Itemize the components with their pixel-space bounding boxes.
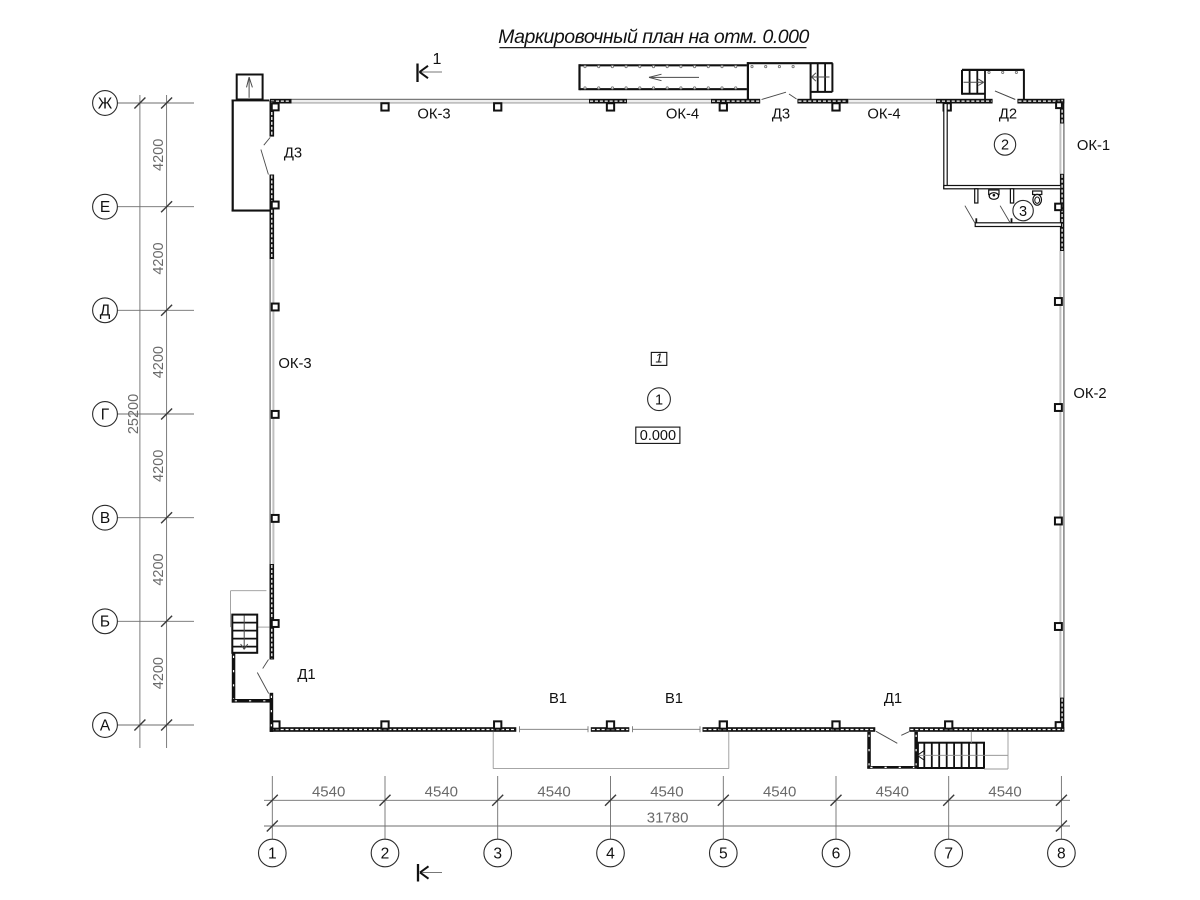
svg-text:Д2: Д2 [999,107,1017,123]
svg-text:1: 1 [268,846,277,863]
svg-text:4540: 4540 [763,784,796,801]
svg-text:4540: 4540 [876,784,909,801]
svg-text:4200: 4200 [151,657,167,689]
svg-text:4540: 4540 [312,784,345,801]
svg-text:Д1: Д1 [297,667,315,683]
svg-text:Д3: Д3 [772,107,790,123]
svg-text:ОК-3: ОК-3 [278,356,311,372]
svg-text:Д1: Д1 [884,691,902,707]
svg-text:Маркировочный план на отм. 0.0: Маркировочный план на отм. 0.000 [498,26,809,48]
svg-text:2: 2 [1001,138,1009,154]
svg-text:Д: Д [100,303,111,320]
svg-text:1: 1 [433,51,442,68]
svg-text:В: В [100,510,110,527]
svg-text:2: 2 [381,846,390,863]
svg-text:25200: 25200 [126,394,142,434]
svg-text:4200: 4200 [151,139,167,171]
svg-text:4540: 4540 [537,784,570,801]
svg-text:31780: 31780 [647,809,689,826]
svg-text:Ж: Ж [98,95,113,112]
svg-text:ОК-1: ОК-1 [1077,138,1110,154]
svg-text:Д3: Д3 [284,146,302,162]
svg-text:А: А [100,717,111,734]
svg-text:4: 4 [606,846,615,863]
svg-text:4540: 4540 [425,784,458,801]
svg-text:ОК-2: ОК-2 [1073,386,1106,402]
svg-text:4200: 4200 [151,450,167,482]
svg-text:ОК-4: ОК-4 [666,107,699,123]
svg-text:4540: 4540 [988,784,1021,801]
svg-text:5: 5 [719,846,728,863]
svg-text:4200: 4200 [151,346,167,378]
svg-text:1: 1 [655,392,663,408]
svg-text:8: 8 [1057,846,1066,863]
svg-text:4200: 4200 [151,553,167,585]
svg-text:3: 3 [493,846,502,863]
svg-text:ОК-3: ОК-3 [417,107,450,123]
svg-text:В1: В1 [549,691,567,707]
svg-text:4540: 4540 [650,784,683,801]
svg-text:Г: Г [101,406,110,423]
svg-text:7: 7 [944,846,953,863]
svg-text:ОК-4: ОК-4 [867,107,900,123]
svg-text:Е: Е [100,199,110,216]
svg-text:0.000: 0.000 [640,428,676,444]
svg-text:6: 6 [832,846,841,863]
svg-text:В1: В1 [665,691,683,707]
svg-text:Б: Б [100,614,110,631]
svg-text:1: 1 [655,351,662,366]
svg-text:4200: 4200 [151,242,167,274]
svg-text:3: 3 [1019,204,1027,220]
